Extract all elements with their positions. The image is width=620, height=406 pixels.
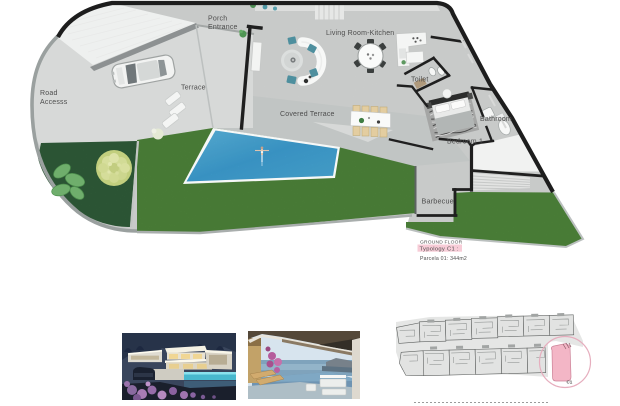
svg-text:Bathroom: Bathroom — [480, 116, 512, 123]
svg-text:Entrance: Entrance — [208, 24, 238, 31]
svg-text:Typology C1 :: Typology C1 : — [420, 247, 459, 253]
svg-text:Toilet: Toilet — [411, 77, 429, 84]
svg-text:Parcela 01: 344m2: Parcela 01: 344m2 — [420, 256, 467, 262]
svg-text:Living Room-Kitchen: Living Room-Kitchen — [326, 30, 394, 37]
svg-text:Bedroom 1: Bedroom 1 — [447, 139, 483, 146]
svg-text:Road: Road — [40, 90, 58, 97]
svg-text:C1: C1 — [567, 380, 573, 385]
svg-text:Porch: Porch — [208, 16, 227, 23]
svg-text:Covered Terrace: Covered Terrace — [280, 111, 335, 118]
svg-text:Accesss: Accesss — [40, 99, 68, 106]
svg-text:Barbecue: Barbecue — [422, 197, 454, 206]
svg-text:Terrace: Terrace — [181, 85, 206, 92]
